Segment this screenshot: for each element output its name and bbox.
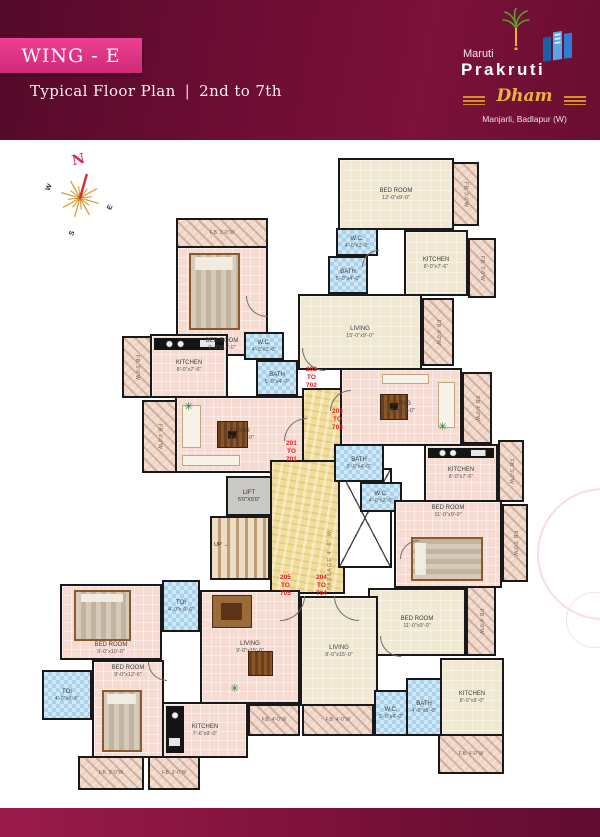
room-dimensions-label: 5'-0"x4'-0" xyxy=(347,464,372,470)
room-dimensions-label: 8'-0"x7'-6" xyxy=(424,264,449,270)
room-dimensions-label: 12'-0"x9'-0" xyxy=(382,195,410,201)
unit-204-704-label: 204 TO 704 xyxy=(316,574,327,598)
room-dimensions-label: 15'-0"x9'-0" xyxy=(387,408,415,414)
furniture-bed-v xyxy=(74,590,131,642)
room-dimensions-label: 4'-0"x2'-0" xyxy=(252,347,277,353)
room-dimensions-label: 5'-0"x4'-0" xyxy=(265,379,290,385)
room-fb-203-bed: F.B. 3'-0"W xyxy=(502,504,528,582)
plant-icon: ✳ xyxy=(230,684,239,695)
furniture-dining-set xyxy=(212,595,252,628)
room-name-label: BATH xyxy=(351,457,367,463)
room-dimensions-label: 5'-0"x4'-0" xyxy=(336,276,361,282)
compass-rose: N W E S xyxy=(44,150,122,242)
room-living-203: LIVING15'-0"x9'-0" xyxy=(340,368,462,446)
room-name-label: F.B. 4'-0"W xyxy=(157,424,163,449)
room-stairs xyxy=(210,516,270,580)
room-name-label: LIFT xyxy=(243,490,255,496)
room-name-label: BATH xyxy=(340,269,356,275)
room-dimensions-label: 11'-0"x9'-0" xyxy=(403,623,430,629)
room-name-label: F.B. 3'-0"W xyxy=(99,770,124,776)
furniture-bed-h xyxy=(411,537,484,581)
room-name-label: LIVING xyxy=(391,401,411,407)
room-dimensions-label: 3'-0"x4'-0" xyxy=(379,714,404,720)
room-bath-201: BATH5'-0"x4'-0" xyxy=(256,360,298,396)
room-name-label: F.B. 4'-0"W xyxy=(459,751,484,757)
passage-label: PASSAGE 4'-6" W xyxy=(327,494,333,590)
room-name-label: F.B. 4'-0"W xyxy=(435,320,441,345)
room-bath-204: BATH4'-0"x5'-0" xyxy=(406,678,442,736)
unit-205-705-label: 205 TO 705 xyxy=(280,574,291,598)
room-dimensions-label: 9'-0"x10'-0" xyxy=(97,649,125,655)
room-fb-201-left: F.B. 3'-0"W xyxy=(122,336,152,398)
room-name-label: BED ROOM xyxy=(206,338,239,344)
room-fb-205-a: F.B. 3'-0"W xyxy=(78,756,144,790)
brand-location-label: Manjarli, Badlapur (W) xyxy=(457,114,592,124)
compass-north-label: N xyxy=(70,151,86,169)
room-dimensions-label: 8'-0"x7'-6" xyxy=(177,367,202,373)
unit-201-701-label: 201 TO 701 xyxy=(286,440,297,464)
room-toi-205a: TOI4'-0"x 6'-6" xyxy=(162,580,200,632)
room-name-label: LIVING xyxy=(240,641,260,647)
brand-name-label: Prakruti xyxy=(461,60,545,80)
room-name-label: F.B. 4'-0"W xyxy=(478,609,484,634)
brand-top-label: Maruti xyxy=(463,48,494,60)
room-name-label: BED ROOM xyxy=(112,665,145,671)
room-dimensions-label: 8'-0"x9'-0" xyxy=(460,698,485,704)
wing-banner: WING - E xyxy=(0,38,142,73)
room-fb-205-living: F.B. 4'-0"W xyxy=(248,704,300,736)
plant-icon xyxy=(501,8,531,55)
dham-flourish-right xyxy=(564,96,586,105)
room-fb-203-living: F.B. 4'-0"W xyxy=(462,372,492,444)
furniture-table-dark-sm xyxy=(248,651,273,675)
room-dimensions-label: 9'-0"x11'-0" xyxy=(208,345,235,351)
room-name-label: BED ROOM xyxy=(401,616,434,622)
room-name-label: F.B. 3'-0"W xyxy=(210,230,235,236)
furniture-counter-top xyxy=(428,448,494,459)
room-name-label: KITCHEN xyxy=(459,691,485,697)
room-name-label: KITCHEN xyxy=(448,467,474,473)
room-name-label: F.B. 3'-0"W xyxy=(512,531,518,556)
plan-subtitle: Typical Floor Plan|2nd to 7th xyxy=(30,82,282,100)
room-name-label: TOI xyxy=(62,689,72,695)
footer-band xyxy=(0,808,600,837)
room-fb-201-living: F.B. 4'-0"W xyxy=(142,400,177,473)
room-dimensions-label: 9'-0"x15'-0" xyxy=(325,652,353,658)
room-name-label: F.B. 3'-0"W xyxy=(162,770,187,776)
furniture-seat-top xyxy=(382,374,429,384)
furniture-bed-v xyxy=(189,253,240,329)
brand-logo: Maruti Prakruti Dham Manjarli, Badlapur … xyxy=(457,10,592,132)
room-dimensions-label: 4'-0"x2'-0" xyxy=(369,498,394,504)
room-lift: LIFT5'0"X5'0" xyxy=(226,476,272,516)
room-kitchen-205: KITCHEN7'-6"x9'-0" xyxy=(162,702,248,758)
room-kitchen-202: KITCHEN8'-0"x7'-6" xyxy=(404,230,468,296)
room-name-label: W.C. xyxy=(375,491,388,497)
room-name-label: W.C. xyxy=(351,236,364,242)
room-dimensions-label: 4'-0"x 6'-6" xyxy=(168,607,194,613)
room-name-label: BED ROOM xyxy=(380,188,413,194)
furniture-counter-left xyxy=(166,706,183,754)
room-fb-204-kitchen: F.B. 4'-0"W xyxy=(438,734,504,774)
room-dimensions-label: 7'-6"x9'-0" xyxy=(193,731,218,737)
furniture-bed-v-low xyxy=(102,690,141,752)
room-name-label: KITCHEN xyxy=(423,257,449,263)
room-fb-203-kitchen: F.B. 3'-0"W xyxy=(498,440,524,502)
room-living-204: LIVING9'-0"x15'-0" xyxy=(300,596,378,706)
room-name-label: F.B. 4'-0"W xyxy=(474,396,480,421)
stairs-up-label: UP → xyxy=(214,542,229,548)
room-dimensions-label: 15'-0"x9'-0" xyxy=(226,435,254,441)
plant-icon: ✳ xyxy=(184,402,193,413)
room-fb-202-bed: F.B. 3'-0"W xyxy=(452,162,479,226)
room-dimensions-label: 4'-0"x6'-6" xyxy=(55,696,80,702)
plan-type-label: Typical Floor Plan xyxy=(30,82,176,100)
room-wc-204: W.C.3'-0"x4'-0" xyxy=(374,690,408,736)
room-bedroom-205a: BED ROOM9'-0"x10'-0" xyxy=(60,584,162,660)
brochure-page: WING - E Typical Floor Plan|2nd to 7th xyxy=(0,0,600,837)
room-name-label: TOI xyxy=(176,600,186,606)
furniture-seat-bottom xyxy=(182,455,240,466)
room-name-label: F.B. 3'-0"W xyxy=(479,256,485,281)
room-fb-202-kitchen: F.B. 3'-0"W xyxy=(468,238,496,298)
subtitle-separator: | xyxy=(185,82,190,100)
room-fb-204-living: F.B. 4'-0"W xyxy=(302,704,374,736)
room-dimensions-label: 9'-0"x15'-0" xyxy=(236,648,264,654)
room-dimensions-label: 9'-0"x12'-6" xyxy=(114,672,142,678)
room-name-label: F.B. 3'-0"W xyxy=(463,182,469,207)
up-arrow-icon: → xyxy=(223,542,229,548)
header-band: WING - E Typical Floor Plan|2nd to 7th xyxy=(0,0,600,140)
room-dimensions-label: 4'-0"x5'-0" xyxy=(412,708,437,714)
room-dimensions-label: 15'-0"x9'-0" xyxy=(346,333,374,339)
room-name-label: LIVING xyxy=(329,645,349,651)
room-toi-205b: TOI4'-0"x6'-6" xyxy=(42,670,92,720)
room-name-label: F.B. 4'-0"W xyxy=(262,717,287,723)
floor-range-label: 2nd to 7th xyxy=(199,82,282,100)
room-fb-205-b: F.B. 3'-0"W xyxy=(148,756,200,790)
unit-203-703-label: 203 TO 703 xyxy=(332,408,343,432)
room-name-label: F.B. 4'-0"W xyxy=(326,717,351,723)
room-name-label: BED ROOM xyxy=(95,642,128,648)
buildings-icon xyxy=(541,26,575,69)
plant-icon: ✳ xyxy=(438,422,447,433)
room-name-label: KITCHEN xyxy=(176,360,202,366)
room-dimensions-label: 5'0"X5'0" xyxy=(238,497,260,503)
room-name-label: W.C. xyxy=(258,340,271,346)
room-name-label: F.B. 3'-0"W xyxy=(508,459,514,484)
unit-202-702-label: 202 TO 702 xyxy=(306,366,317,390)
room-fb-204-bed: F.B. 4'-0"W xyxy=(466,586,496,656)
room-name-label: F.B. 3'-0"W xyxy=(134,355,140,380)
room-name-label: BATH xyxy=(269,372,285,378)
room-bath-203: BATH5'-0"x4'-0" xyxy=(334,444,384,482)
room-name-label: BED ROOM xyxy=(432,505,465,511)
room-bedroom-202: BED ROOM12'-0"x9'-0" xyxy=(338,158,454,230)
room-kitchen-203: KITCHEN8'-0"x7'-6" xyxy=(424,444,498,502)
room-name-label: LIVING xyxy=(350,326,370,332)
room-dimensions-label: 4'-0"x2'-0" xyxy=(345,243,370,249)
room-fb-202-living: F.B. 4'-0"W xyxy=(422,298,454,366)
room-name-label: W.C. xyxy=(385,707,398,713)
room-name-label: BATH xyxy=(416,701,432,707)
room-name-label: KITCHEN xyxy=(192,724,218,730)
room-dimensions-label: 8'-0"x7'-6" xyxy=(449,474,474,480)
room-name-label: LIVING xyxy=(230,428,250,434)
room-fb-201-top: F.B. 3'-0"W xyxy=(176,218,268,248)
room-dimensions-label: 11'-0"x9'-0" xyxy=(434,512,461,518)
room-kitchen-204: KITCHEN8'-0"x9'-0" xyxy=(440,658,504,736)
